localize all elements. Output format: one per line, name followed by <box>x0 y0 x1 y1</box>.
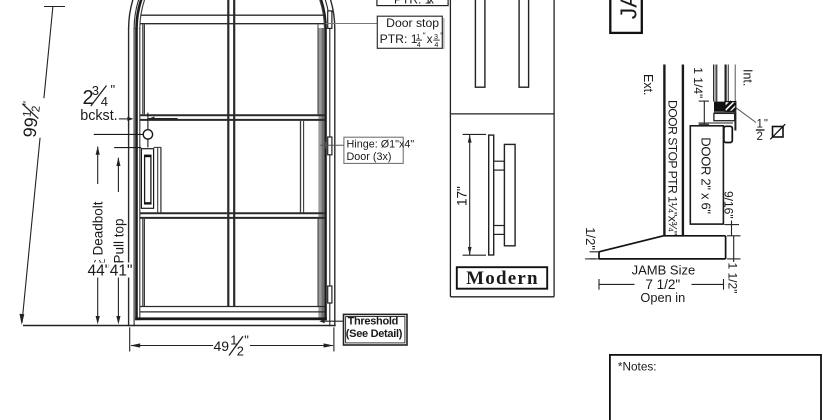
svg-text:Int.: Int. <box>741 69 755 86</box>
svg-text:DOOR STOP PTR 1¼"x¾": DOOR STOP PTR 1¼"x¾" <box>665 100 679 235</box>
svg-text:": " <box>440 31 443 41</box>
svg-text:99: 99 <box>20 117 42 139</box>
svg-text:Hinge: Ø1"x4": Hinge: Ø1"x4" <box>347 139 415 151</box>
svg-text:x: x <box>428 0 434 6</box>
svg-text:DOOR 2" x 6": DOOR 2" x 6" <box>699 137 714 214</box>
svg-text:4: 4 <box>434 40 438 49</box>
svg-text:1 1/4": 1 1/4" <box>691 67 705 98</box>
svg-text:Threshold: Threshold <box>348 316 398 328</box>
svg-text:PTR: 1: PTR: 1 <box>394 0 432 6</box>
svg-text:41": 41" <box>110 262 133 279</box>
svg-text:Door (3x): Door (3x) <box>347 151 392 163</box>
svg-text:": " <box>244 333 249 348</box>
svg-text:*Notes:: *Notes: <box>618 360 657 374</box>
svg-text:1 1/2": 1 1/2" <box>725 263 739 294</box>
svg-text:49: 49 <box>214 338 230 354</box>
svg-text:Deadbolt: Deadbolt <box>91 201 106 255</box>
svg-text:JAMB: JAMB <box>615 0 641 19</box>
svg-text:": " <box>764 118 768 130</box>
svg-text:JAMB Size: JAMB Size <box>632 262 696 277</box>
svg-text:": " <box>423 31 426 41</box>
svg-text:2: 2 <box>237 344 244 359</box>
svg-text:bckst.: bckst. <box>80 108 117 124</box>
svg-text:4: 4 <box>101 94 108 109</box>
svg-text:4: 4 <box>417 40 421 49</box>
svg-text:2: 2 <box>757 131 763 143</box>
svg-text:x: x <box>427 34 433 46</box>
svg-text:Pull top: Pull top <box>112 218 127 263</box>
svg-text:Open in: Open in <box>640 290 685 305</box>
svg-text:Ext.: Ext. <box>641 74 655 96</box>
svg-text:Modern: Modern <box>466 268 539 289</box>
svg-text:": " <box>111 82 116 97</box>
svg-text:44": 44" <box>88 262 111 279</box>
svg-text:PTR: 1: PTR: 1 <box>380 32 418 46</box>
svg-text:9/16": 9/16" <box>721 191 735 219</box>
svg-text:1: 1 <box>757 119 763 131</box>
svg-text:17": 17" <box>455 186 470 206</box>
svg-text:(See Detail): (See Detail) <box>346 328 403 340</box>
svg-text:1/2": 1/2" <box>583 227 598 250</box>
svg-text:Door stop: Door stop <box>386 16 439 30</box>
